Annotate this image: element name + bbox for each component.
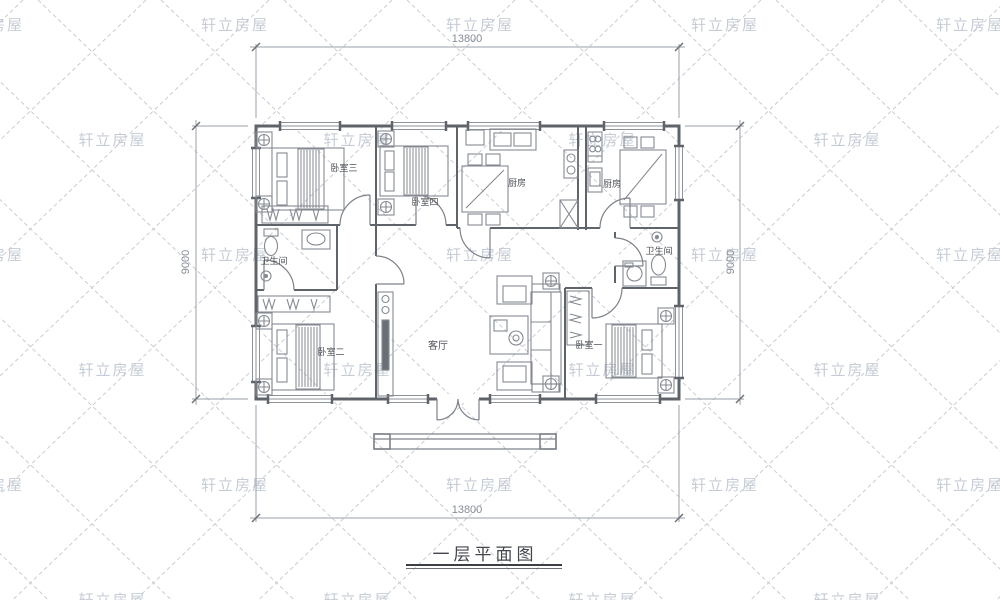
dim-left: 9000 (180, 250, 192, 274)
dim-bottom: 13800 (452, 504, 483, 516)
room-label-bath-right: 卫生间 (645, 245, 672, 256)
window (280, 121, 340, 131)
door-kitchen-left (460, 228, 490, 258)
living-room-fittings (378, 276, 561, 396)
room-label-bedroom1: 卧室一 (575, 339, 602, 350)
door-bath-right (615, 238, 643, 266)
lamp-symbol (543, 273, 559, 289)
window (674, 306, 684, 378)
bathroom-left-fittings (264, 229, 330, 256)
shower-head-symbol (261, 271, 271, 281)
door-bedroom1 (592, 288, 622, 318)
window (596, 394, 660, 404)
wardrobe-bedroom1 (567, 291, 589, 345)
room-label-bedroom2: 卧室二 (317, 346, 344, 357)
lamp-symbol (256, 132, 272, 148)
window (388, 394, 428, 404)
flue-shaft (560, 200, 578, 228)
window (604, 121, 664, 131)
title-underline-thin (406, 568, 562, 569)
lamp-symbol (658, 308, 674, 324)
title-underline-thick (406, 564, 562, 566)
shower-head-symbol (652, 232, 662, 242)
window (251, 148, 261, 198)
entrance-porch (374, 434, 556, 449)
window (392, 121, 446, 131)
dim-top: 13800 (452, 33, 483, 45)
drawing-title: 一层平面图 (404, 540, 566, 565)
dim-right: 9000 (725, 250, 737, 274)
window (490, 394, 540, 404)
window (251, 326, 261, 382)
floor-plan-canvas: 轩立房屋轩立房屋轩立房屋轩立房屋轩立房屋轩立房屋轩立房屋轩立房屋轩立房屋轩立房屋… (0, 0, 1000, 600)
window (268, 394, 332, 404)
wardrobe-bedroom2 (258, 296, 330, 312)
bed-bedroom1 (606, 324, 662, 378)
lamp-symbol (378, 199, 394, 215)
room-label-bath-left: 卫生间 (260, 255, 287, 266)
dimension-ticks (192, 43, 744, 522)
lamp-symbol (543, 376, 559, 392)
lamp-symbol (378, 131, 394, 147)
room-label-bedroom3: 卧室三 (330, 162, 357, 173)
kitchen-left-fittings (462, 129, 578, 225)
bathroom-right-fittings (623, 255, 666, 286)
dimension-lines (192, 43, 744, 522)
bed-bedroom4 (380, 146, 448, 196)
room-label-living: 客厅 (428, 339, 448, 352)
room-label-bedroom4: 卧室四 (411, 196, 438, 207)
kitchen-right-fittings (588, 132, 666, 217)
door-bedroom2 (376, 256, 404, 284)
window (674, 146, 684, 200)
bed-bedroom3 (272, 148, 344, 210)
room-label-kitchen-left: 厨房 (508, 177, 526, 188)
room-labels: 卧室三 卧室四 厨房 厨房 卫生间 卫生间 客厅 卧室二 卧室一 (260, 162, 672, 357)
bed-bedroom2 (272, 324, 334, 390)
floor-plan-drawing: 13800 13800 9000 9000 卧室三 卧室四 厨房 厨房 卫生间 … (0, 0, 1000, 600)
room-label-kitchen-right: 厨房 (603, 178, 621, 189)
lamp-symbol (658, 377, 674, 393)
